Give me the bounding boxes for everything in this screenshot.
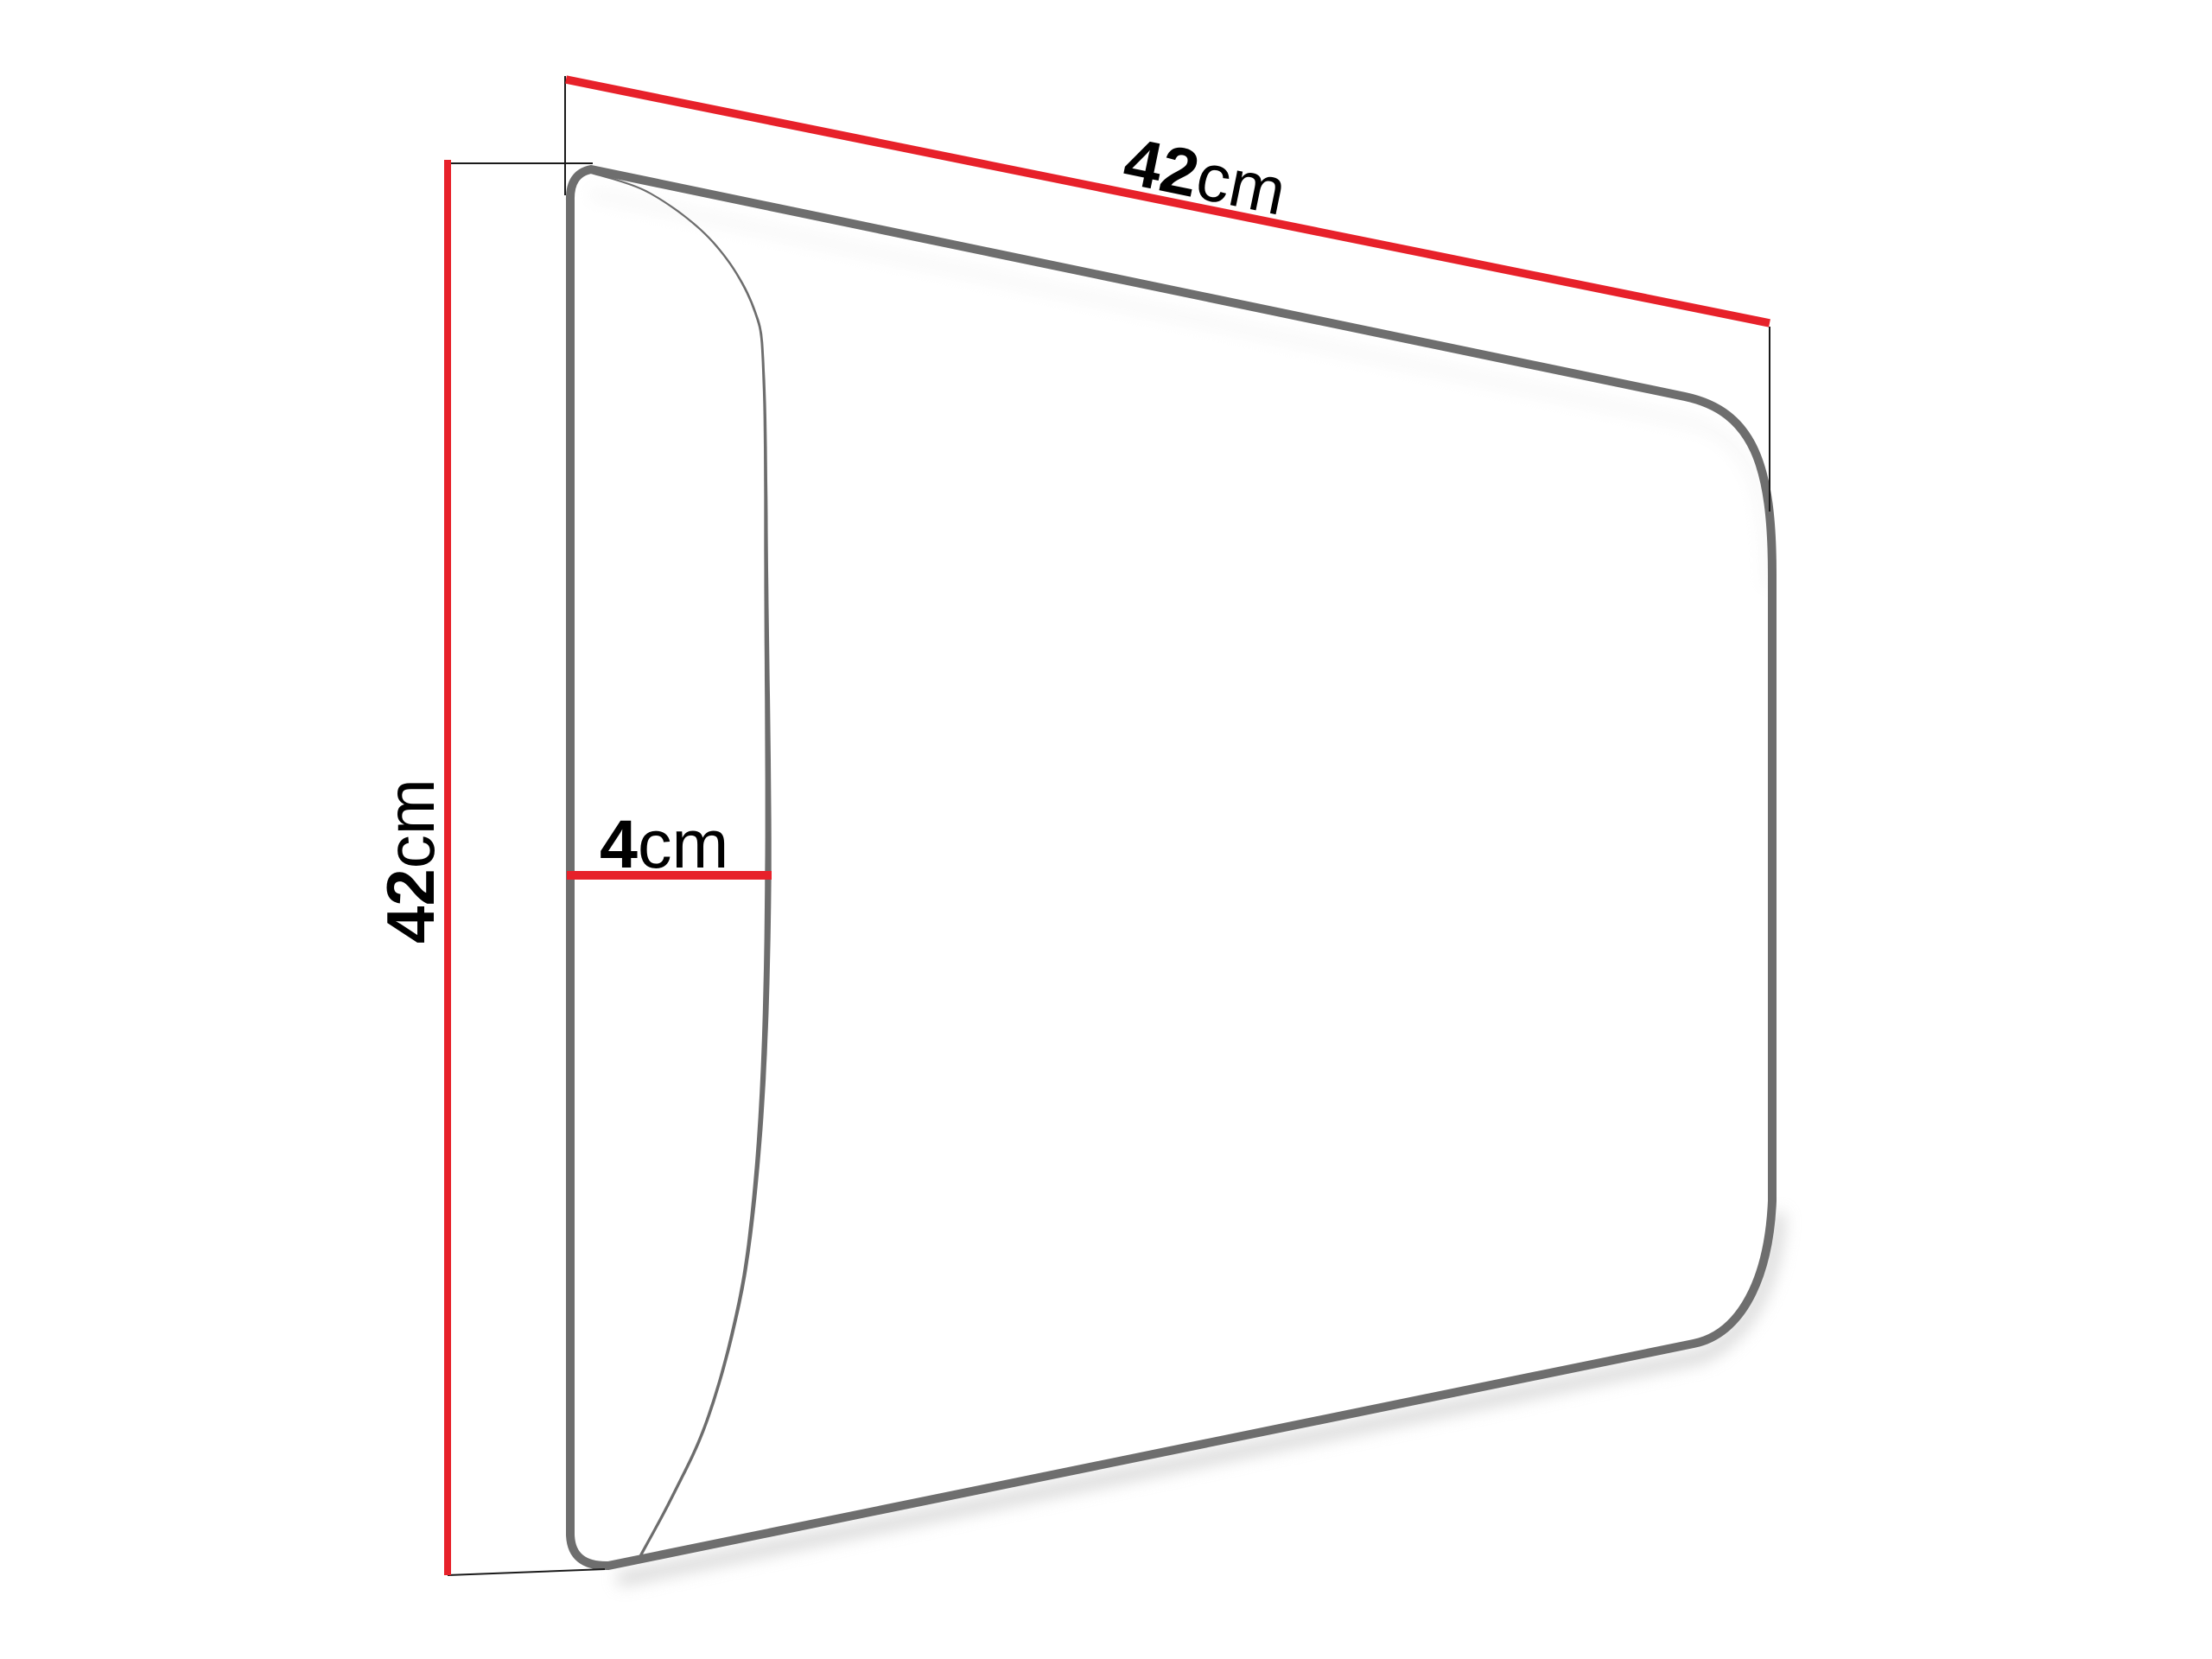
svg-text:4cm: 4cm [600, 805, 728, 882]
svg-text:42cm: 42cm [372, 779, 448, 944]
